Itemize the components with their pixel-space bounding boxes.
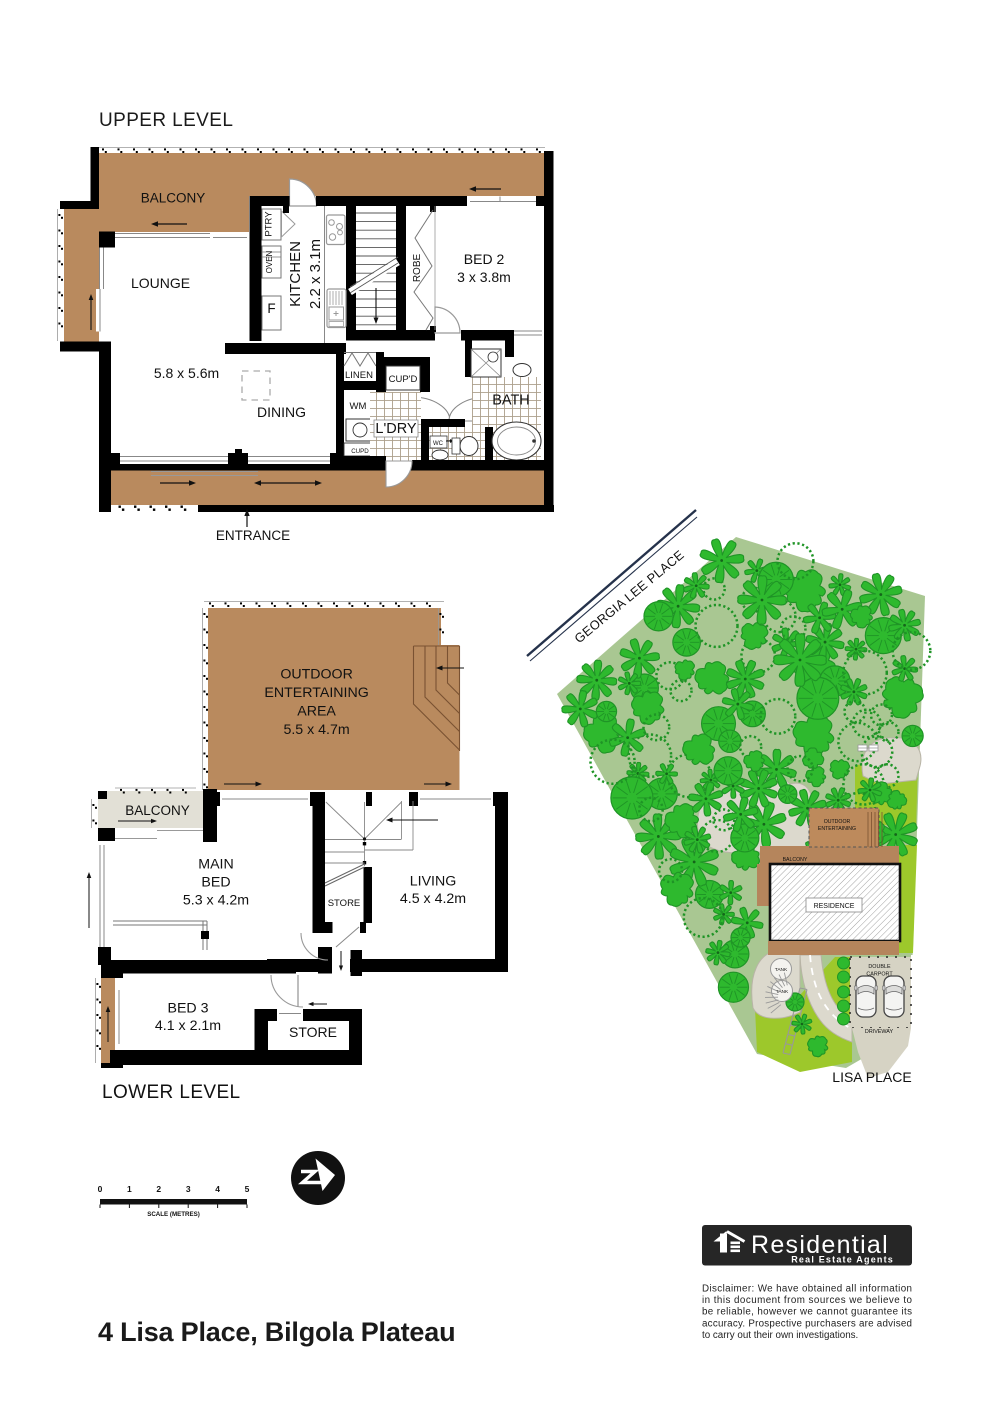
svg-text:5.8 x 5.6m: 5.8 x 5.6m: [154, 365, 219, 381]
svg-text:1: 1: [127, 1184, 132, 1194]
svg-text:in this document from sources: in this document from sources we believe…: [702, 1295, 913, 1306]
svg-text:BATH: BATH: [492, 393, 530, 409]
svg-text:BED 3: BED 3: [167, 1001, 208, 1017]
svg-text:WC: WC: [433, 441, 444, 447]
svg-text:4.5 x 4.2m: 4.5 x 4.2m: [400, 891, 466, 907]
svg-text:WM: WM: [350, 401, 367, 412]
svg-text:ENTERTAINING: ENTERTAINING: [818, 826, 856, 832]
svg-text:5.3 x 4.2m: 5.3 x 4.2m: [183, 893, 249, 909]
svg-text:CUP'D: CUP'D: [389, 374, 418, 385]
svg-text:STORE: STORE: [328, 898, 361, 909]
svg-text:3: 3: [186, 1184, 191, 1194]
svg-text:4 Lisa Place, Bilgola Plateau: 4 Lisa Place, Bilgola Plateau: [98, 1317, 455, 1347]
svg-text:UPPER LEVEL: UPPER LEVEL: [99, 110, 233, 131]
svg-text:DOUBLE: DOUBLE: [868, 964, 891, 970]
svg-text:MAIN: MAIN: [198, 857, 233, 873]
svg-text:4.1 x 2.1m: 4.1 x 2.1m: [155, 1018, 221, 1034]
svg-text:OUTDOOR: OUTDOOR: [280, 667, 353, 683]
svg-text:STORE: STORE: [289, 1024, 337, 1040]
svg-text:to carry out their own investi: to carry out their own investigations.: [702, 1330, 858, 1341]
svg-text:SCALE (METRES): SCALE (METRES): [147, 1211, 200, 1218]
svg-text:LINEN: LINEN: [345, 370, 373, 381]
svg-text:4: 4: [215, 1184, 220, 1194]
svg-text:L'DRY: L'DRY: [375, 421, 417, 437]
svg-text:ENTRANCE: ENTRANCE: [216, 528, 290, 543]
svg-text:ROBE: ROBE: [412, 254, 423, 283]
svg-text:be reliable, however we cannot: be reliable, however we cannot guarantee…: [702, 1307, 912, 1318]
svg-text:0: 0: [98, 1184, 103, 1194]
svg-text:DINING: DINING: [257, 404, 306, 420]
svg-text:ENTERTAINING: ENTERTAINING: [264, 685, 368, 701]
svg-text:PTRY: PTRY: [264, 211, 275, 237]
svg-text:BALCONY: BALCONY: [125, 803, 190, 818]
svg-text:5.5 x 4.7m: 5.5 x 4.7m: [283, 722, 349, 738]
svg-text:OUTDOOR: OUTDOOR: [824, 819, 851, 825]
svg-text:F: F: [267, 301, 275, 316]
svg-text:TANK: TANK: [775, 967, 788, 973]
svg-text:LOWER LEVEL: LOWER LEVEL: [102, 1082, 241, 1103]
svg-text:2: 2: [156, 1184, 161, 1194]
svg-text:BED: BED: [201, 875, 230, 891]
svg-text:DRIVEWAY: DRIVEWAY: [865, 1029, 894, 1035]
svg-text:LIVING: LIVING: [410, 874, 457, 890]
svg-text:LISA PLACE: LISA PLACE: [832, 1069, 911, 1085]
svg-text:Real Estate Agents: Real Estate Agents: [791, 1255, 894, 1265]
svg-text:BALCONY: BALCONY: [141, 191, 206, 206]
svg-text:RESIDENCE: RESIDENCE: [814, 903, 855, 910]
svg-text:BALCONY: BALCONY: [783, 857, 808, 863]
svg-text:5: 5: [245, 1184, 250, 1194]
svg-text:BED 2: BED 2: [464, 251, 505, 267]
svg-text:accuracy. Prospective purchase: accuracy. Prospective purchasers are adv…: [702, 1318, 912, 1329]
svg-text:KITCHEN: KITCHEN: [287, 241, 304, 307]
svg-text:AREA: AREA: [297, 704, 336, 720]
svg-text:Disclaimer: We have obtained a: Disclaimer: We have obtained all informa…: [702, 1284, 912, 1295]
svg-text:3 x 3.8m: 3 x 3.8m: [457, 269, 511, 285]
svg-text:2.2 x 3.1m: 2.2 x 3.1m: [307, 239, 324, 309]
svg-text:LOUNGE: LOUNGE: [131, 275, 190, 291]
svg-text:OVEN: OVEN: [265, 250, 274, 273]
svg-text:CUPD: CUPD: [351, 448, 369, 455]
